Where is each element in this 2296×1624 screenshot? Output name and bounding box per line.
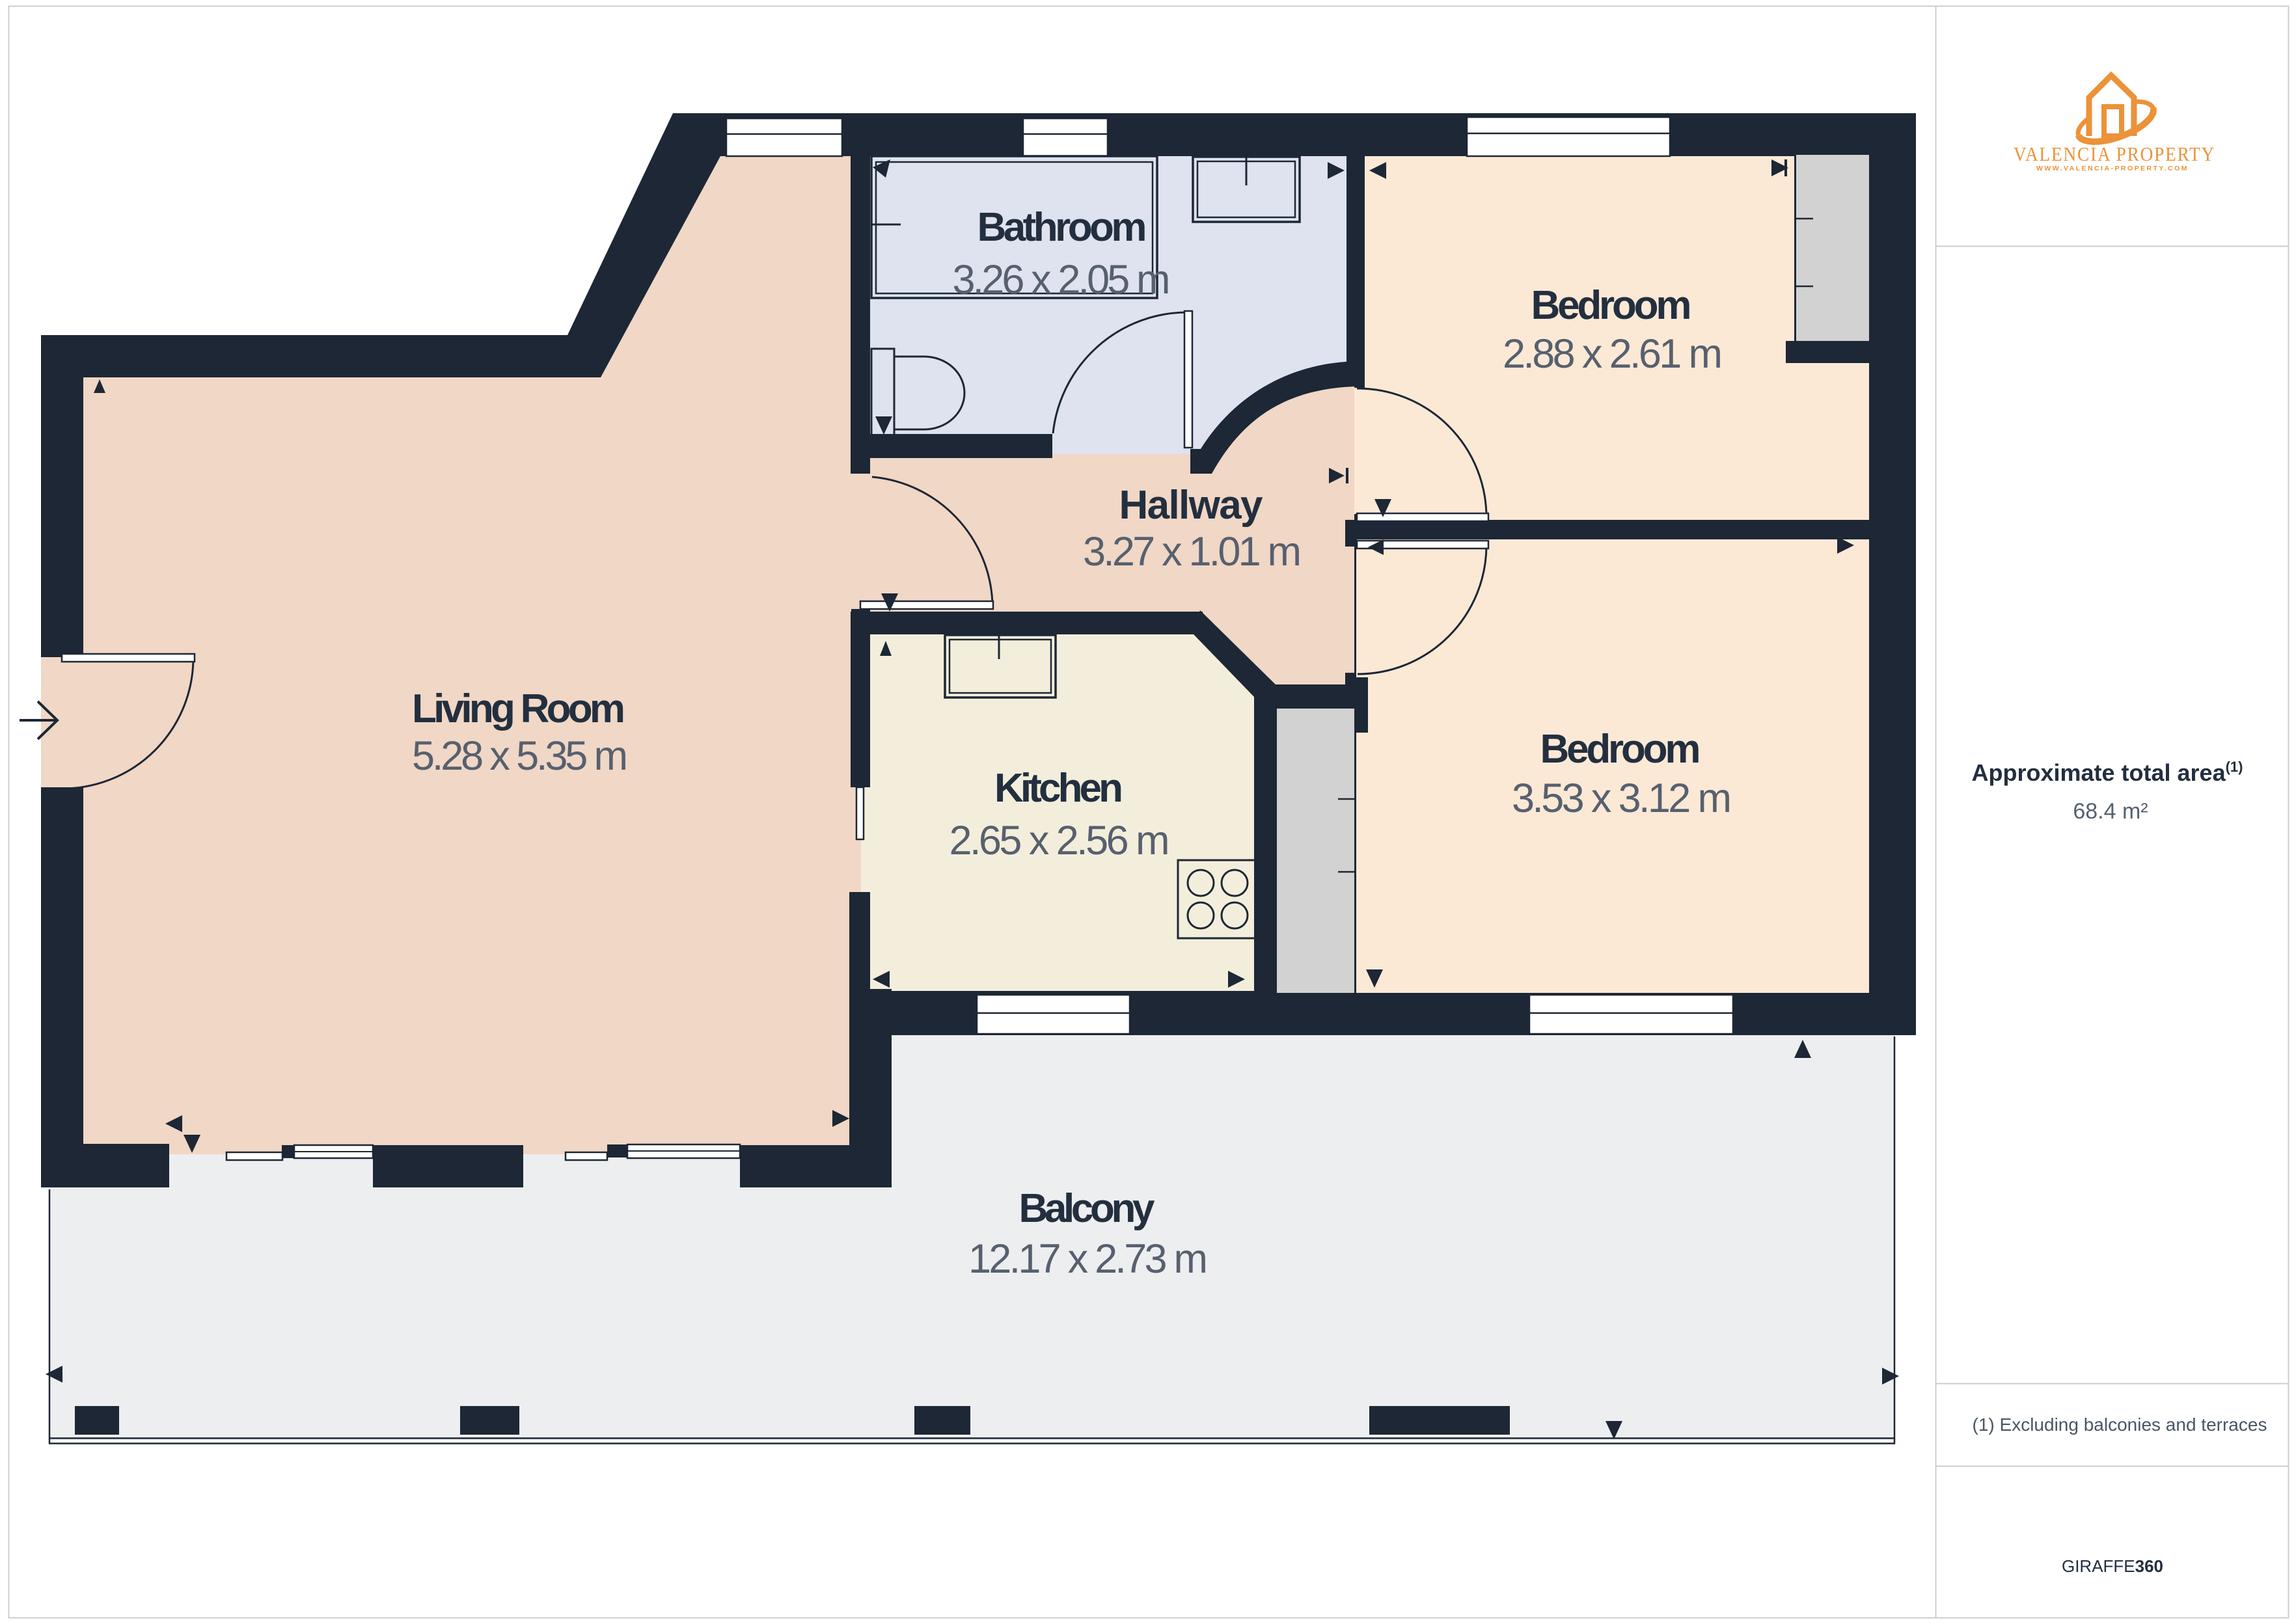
svg-text:3.53 x 3.12 m: 3.53 x 3.12 m bbox=[1512, 776, 1732, 821]
svg-text:12.17 x 2.73 m: 12.17 x 2.73 m bbox=[968, 1236, 1208, 1282]
svg-text:3.26 x 2.05 m: 3.26 x 2.05 m bbox=[953, 257, 1171, 303]
svg-text:Hallway: Hallway bbox=[1119, 483, 1264, 528]
svg-text:Bedroom: Bedroom bbox=[1531, 283, 1692, 328]
svg-text:Kitchen: Kitchen bbox=[994, 766, 1123, 811]
svg-text:(1) Excluding balconies and te: (1) Excluding balconies and terraces bbox=[1973, 1414, 2267, 1435]
svg-text:Approximate total area(1): Approximate total area(1) bbox=[1971, 759, 2243, 786]
svg-text:2.88 x 2.61 m: 2.88 x 2.61 m bbox=[1503, 331, 1723, 377]
svg-text:5.28 x 5.35 m: 5.28 x 5.35 m bbox=[412, 733, 628, 779]
svg-text:2.65 x 2.56 m: 2.65 x 2.56 m bbox=[950, 818, 1170, 863]
svg-text:3.27 x 1.01 m: 3.27 x 1.01 m bbox=[1083, 529, 1302, 575]
svg-text:GIRAFFE360: GIRAFFE360 bbox=[2062, 1556, 2163, 1576]
svg-text:VALENCIA PROPERTY: VALENCIA PROPERTY bbox=[2014, 142, 2215, 165]
svg-text:Bathroom: Bathroom bbox=[977, 205, 1147, 250]
svg-text:68.4 m²: 68.4 m² bbox=[2073, 799, 2148, 824]
svg-text:WWW.VALENCIA-PROPERTY.COM: WWW.VALENCIA-PROPERTY.COM bbox=[2036, 165, 2189, 172]
svg-text:Balcony: Balcony bbox=[1019, 1186, 1156, 1231]
svg-text:Living Room: Living Room bbox=[412, 686, 625, 731]
svg-text:Bedroom: Bedroom bbox=[1540, 727, 1701, 772]
